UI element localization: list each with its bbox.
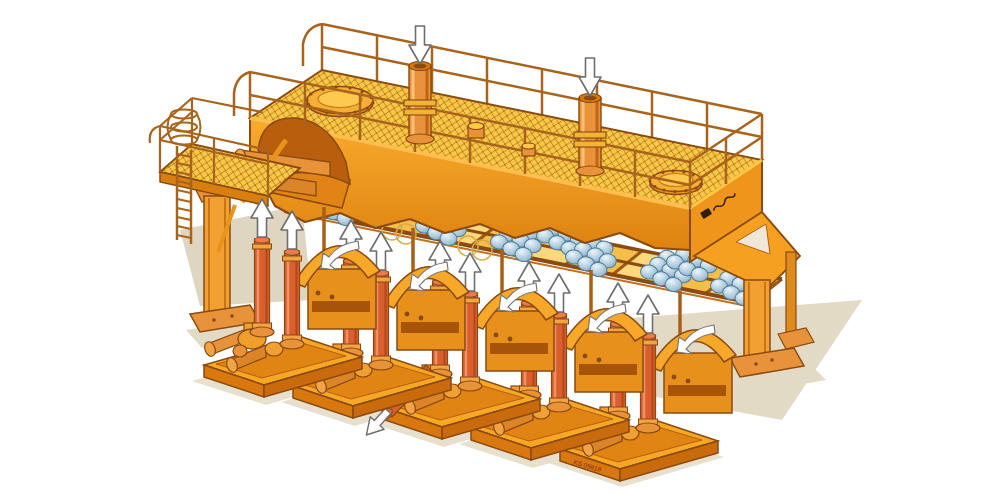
flow-down-arrow-1 [409, 26, 431, 64]
pump-station-drawing: KS 09818 [0, 0, 1000, 500]
machine-illustration: KS 09818 [0, 0, 1000, 500]
standpipe-1 [404, 26, 436, 144]
